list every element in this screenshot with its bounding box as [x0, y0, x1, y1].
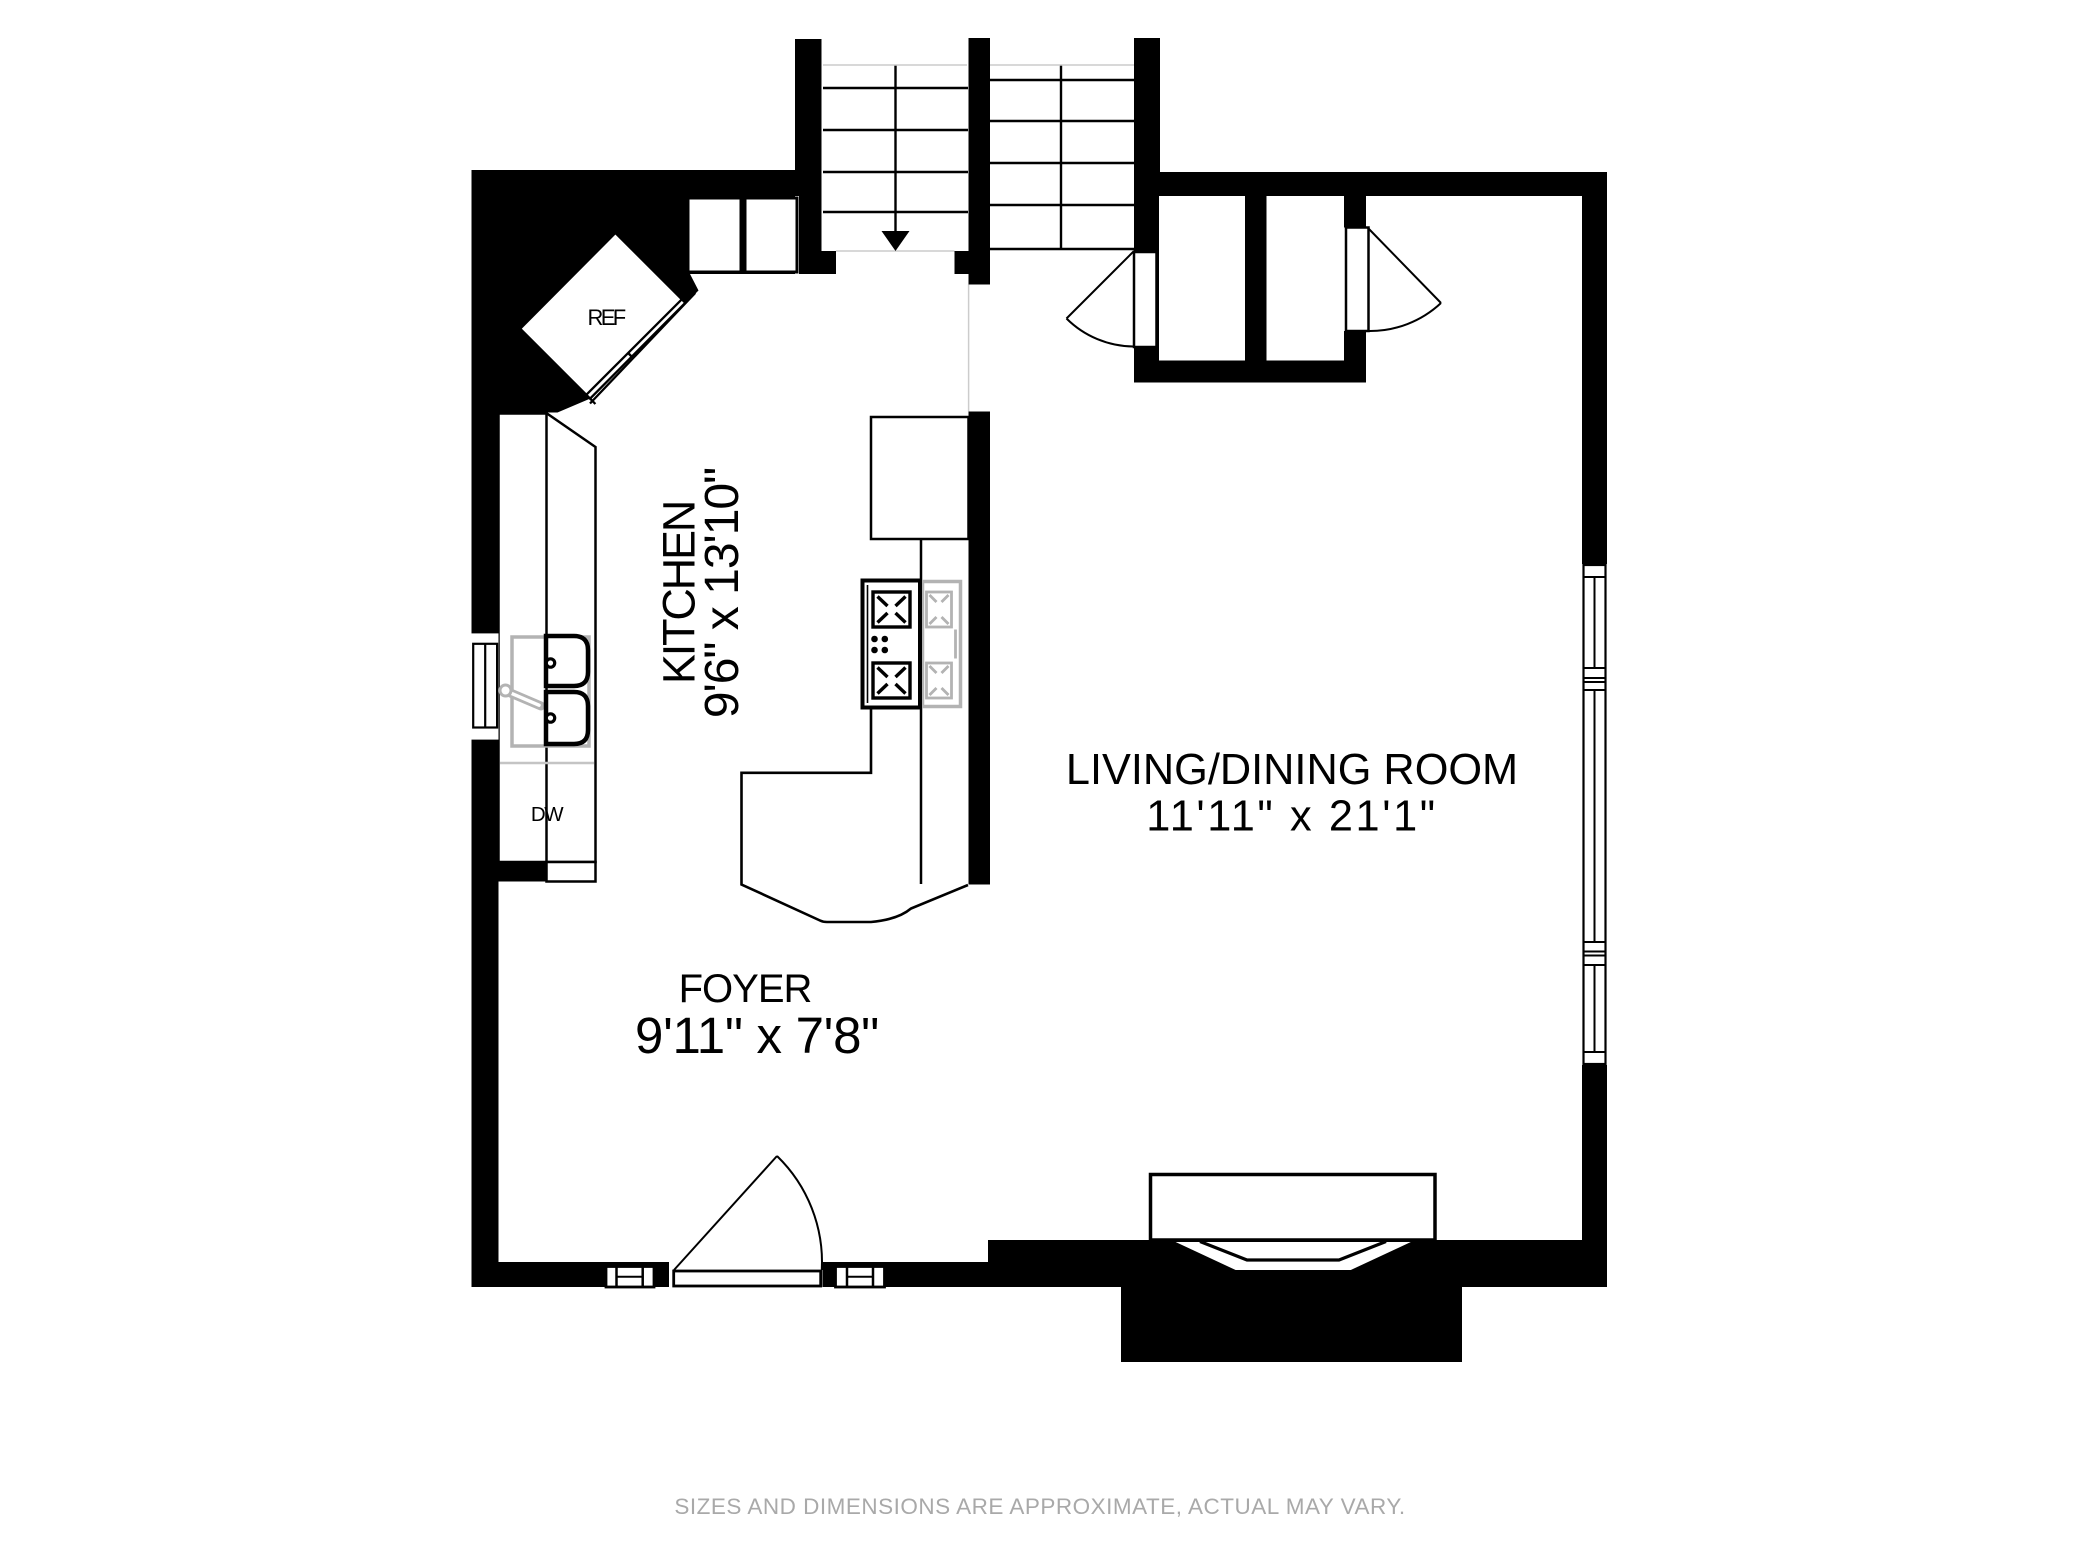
- svg-text:DW: DW: [531, 803, 564, 826]
- svg-text:9'11" x 7'8": 9'11" x 7'8": [635, 1007, 879, 1064]
- svg-text:REF: REF: [588, 305, 626, 330]
- svg-text:SIZES AND DIMENSIONS ARE APPRO: SIZES AND DIMENSIONS ARE APPROXIMATE, AC…: [674, 1494, 1405, 1519]
- svg-text:11'11" x 21'1": 11'11" x 21'1": [1146, 792, 1438, 840]
- svg-text:FOYER: FOYER: [679, 967, 812, 1011]
- svg-text:LIVING/DINING ROOM: LIVING/DINING ROOM: [1066, 746, 1518, 794]
- svg-text:9'6" x 13'10": 9'6" x 13'10": [696, 468, 749, 718]
